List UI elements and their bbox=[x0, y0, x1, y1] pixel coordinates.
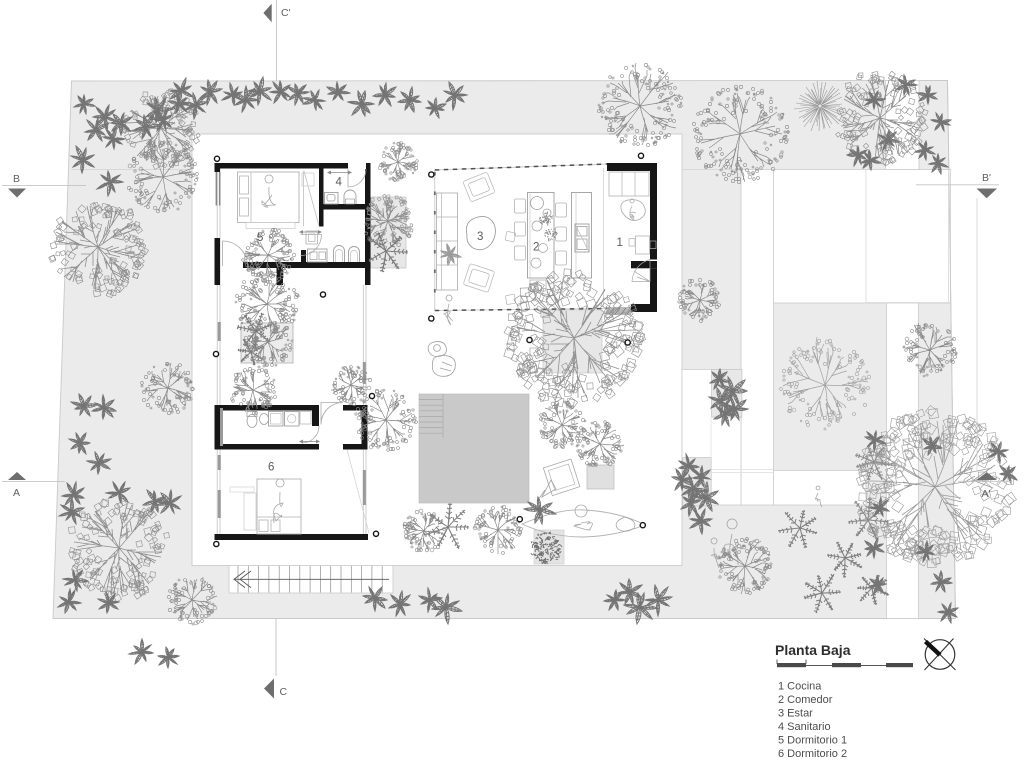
svg-text:5: 5 bbox=[257, 232, 263, 244]
svg-text:C: C bbox=[280, 686, 288, 698]
svg-text:4 Sanitario: 4 Sanitario bbox=[778, 721, 831, 733]
svg-text:B: B bbox=[13, 173, 20, 185]
svg-text:B': B' bbox=[982, 172, 991, 184]
svg-text:1: 1 bbox=[617, 237, 623, 249]
svg-text:1 Cocina: 1 Cocina bbox=[778, 681, 822, 693]
svg-text:6 Dormitorio 2: 6 Dormitorio 2 bbox=[778, 748, 847, 760]
svg-text:4: 4 bbox=[336, 177, 343, 189]
svg-text:5 Dormitorio 1: 5 Dormitorio 1 bbox=[778, 734, 847, 746]
svg-text:A': A' bbox=[982, 488, 991, 500]
svg-text:2: 2 bbox=[533, 242, 539, 254]
svg-text:2 Comedor: 2 Comedor bbox=[778, 694, 833, 706]
svg-text:A: A bbox=[13, 487, 20, 499]
svg-text:6: 6 bbox=[268, 462, 274, 474]
svg-text:3 Estar: 3 Estar bbox=[778, 707, 813, 719]
svg-text:3: 3 bbox=[477, 231, 483, 243]
svg-text:C': C' bbox=[281, 7, 291, 19]
svg-text:Planta Baja: Planta Baja bbox=[775, 642, 851, 658]
